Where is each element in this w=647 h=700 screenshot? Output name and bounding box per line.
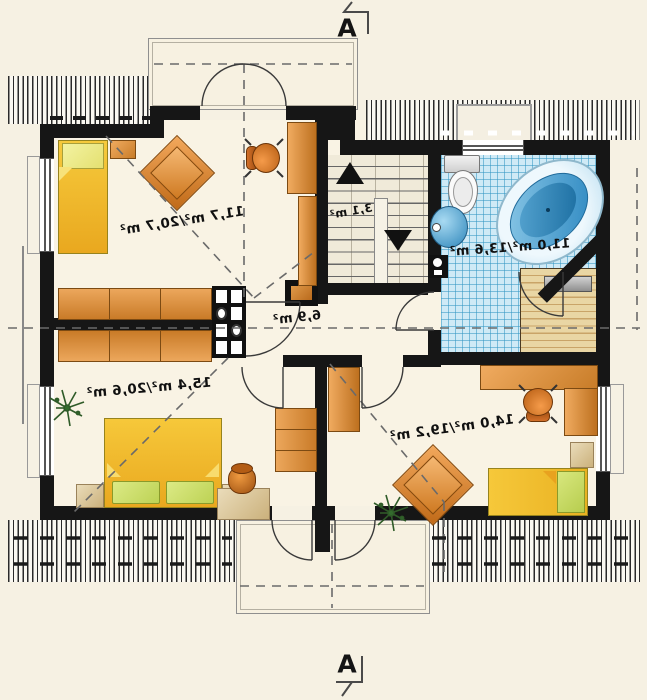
window-glass-line	[49, 159, 51, 251]
window-glass-line	[49, 387, 51, 475]
wall-segment	[150, 106, 200, 120]
flue-cell	[216, 290, 227, 303]
wall-segment	[441, 352, 596, 365]
bed-pillow	[557, 471, 585, 513]
chimney-core	[291, 286, 312, 300]
window-glass-line	[600, 387, 602, 471]
toilet-bowl-inner	[453, 177, 473, 207]
vase-rim	[231, 463, 253, 474]
flue-cell	[231, 290, 242, 303]
dresser-drawer	[276, 409, 316, 430]
section-mark-top: A	[337, 14, 356, 43]
floor-plan: 11,7 m²/20,7 m² 3,1 m² 11,0 m²/13,6 m² 6…	[0, 0, 647, 700]
wardrobe-long-top	[58, 288, 212, 320]
bed-pillow	[62, 143, 104, 169]
wardrobe-section	[110, 289, 161, 319]
desk-l-vertical	[564, 388, 598, 436]
window-glass-line	[463, 149, 523, 151]
wardrobe-section	[161, 331, 211, 361]
wardrobe-section	[161, 289, 211, 319]
wardrobe-section	[110, 331, 161, 361]
tall-cabinet	[298, 196, 317, 286]
office-chair-seat	[252, 143, 280, 173]
balcony	[148, 38, 358, 110]
bed-fold	[59, 167, 73, 181]
roof-hatch-top-left	[8, 76, 150, 124]
washer-dial	[433, 258, 442, 267]
window-left-top	[40, 158, 54, 252]
window-glass-line	[44, 387, 46, 475]
window-bathroom-dormer	[462, 140, 524, 155]
nightstand	[110, 140, 136, 159]
window-sill	[27, 156, 40, 254]
bed-fold	[543, 471, 556, 484]
washer-door	[434, 270, 442, 275]
washing-machine	[428, 255, 448, 278]
roof-hatch-bottom-right	[428, 520, 640, 582]
window-right	[596, 386, 610, 472]
dresser	[275, 408, 317, 472]
sink	[430, 206, 468, 248]
bathroom-door-gap	[428, 292, 441, 330]
vase	[228, 466, 256, 494]
flue-cell	[216, 324, 227, 337]
flue-cell	[216, 341, 227, 354]
wall-segment	[40, 138, 54, 158]
terrace	[236, 520, 430, 614]
window-left-bottom	[40, 386, 54, 476]
bed-fold	[205, 463, 219, 477]
office-chair-seat	[523, 388, 553, 416]
flue-cell-vent	[231, 324, 242, 337]
bed-fold	[107, 463, 121, 477]
office-chair	[246, 141, 282, 175]
wardrobe-section	[59, 331, 110, 361]
window-glass-line	[44, 159, 46, 251]
nightstand	[570, 442, 594, 468]
window-glass-line	[605, 387, 607, 471]
bed-double	[104, 418, 222, 508]
roof-hatch-bottom-left	[8, 520, 236, 582]
window-sill	[27, 384, 40, 478]
bathtub-drain	[546, 208, 550, 212]
exterior-pipe-line	[22, 246, 24, 424]
bed-single-1	[58, 140, 108, 254]
nightstand	[76, 484, 104, 508]
dresser-drawer	[276, 430, 316, 451]
window-glass-line	[463, 145, 523, 147]
wall-segment	[283, 355, 362, 367]
flue-block	[212, 286, 246, 358]
desk	[287, 122, 317, 194]
wardrobe-section	[59, 289, 110, 319]
wall-segment	[312, 506, 335, 520]
flue-cell	[231, 341, 242, 354]
sink-tap	[432, 223, 441, 232]
wall-segment	[315, 283, 428, 295]
window-sill	[610, 384, 624, 474]
flue-cell	[231, 307, 242, 320]
bed-single-2	[488, 468, 588, 516]
armchair-seat	[150, 146, 204, 200]
wall-segment	[340, 140, 462, 155]
dresser-drawer	[276, 451, 316, 471]
wardrobe	[328, 367, 360, 432]
office-chair	[521, 386, 555, 422]
dormer-surround	[456, 104, 532, 144]
bed-pillow	[166, 481, 214, 504]
bed-pillow	[112, 481, 160, 504]
wall-segment	[403, 355, 441, 367]
wall-segment	[40, 124, 162, 138]
flue-cell-vent	[216, 307, 227, 320]
section-mark-bottom: A	[337, 650, 356, 679]
stair-stringer	[374, 198, 388, 287]
wardrobe-long-bottom	[58, 330, 212, 362]
